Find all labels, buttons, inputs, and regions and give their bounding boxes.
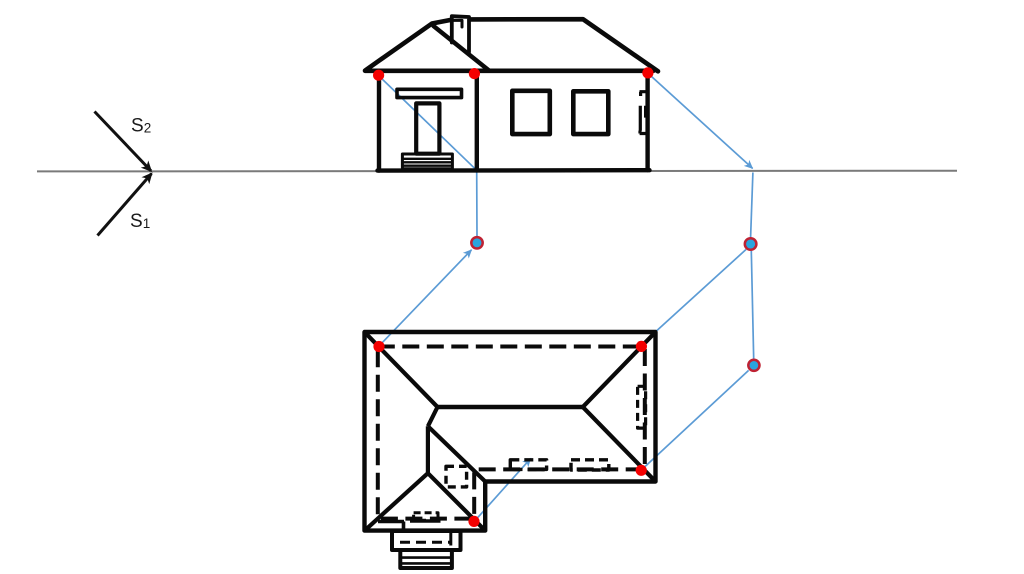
svg-text:S1: S1 (130, 211, 150, 232)
svg-text:S2: S2 (131, 116, 151, 137)
